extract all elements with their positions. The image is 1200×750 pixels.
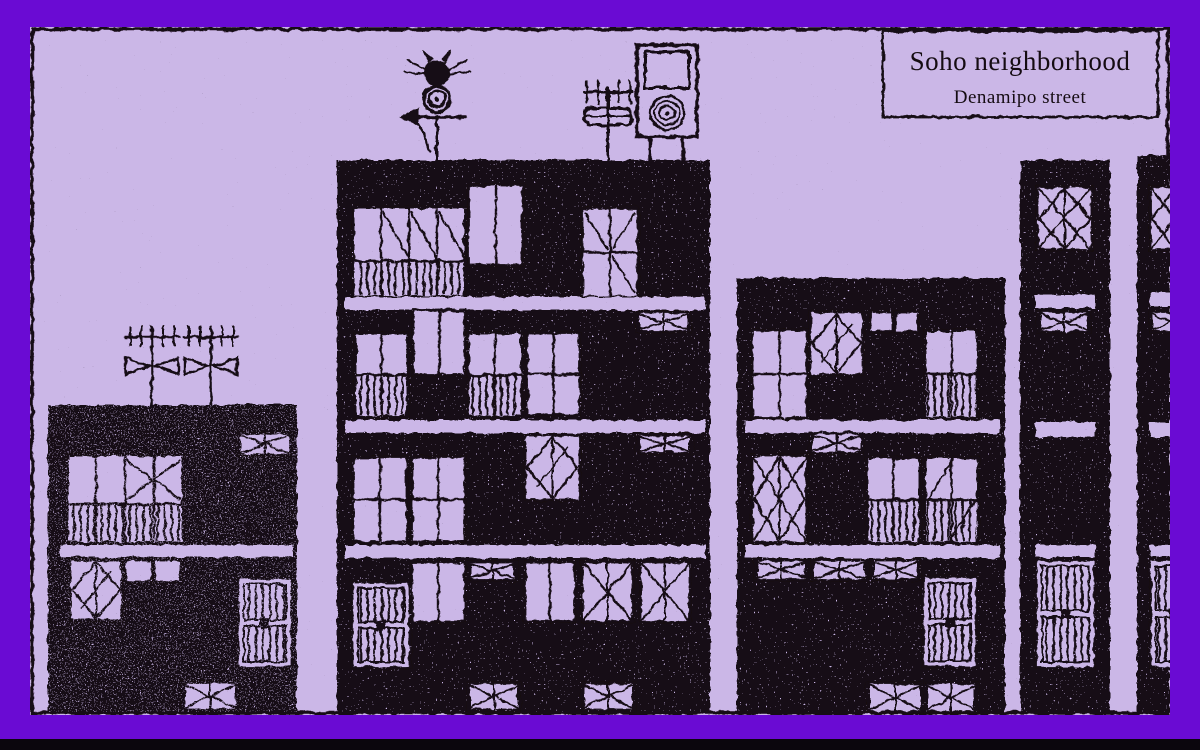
street-label-plaque: Soho neighborhood Denamipo street: [883, 31, 1158, 117]
paper-grain: [30, 27, 1170, 715]
street-subtitle: Denamipo street: [954, 87, 1087, 108]
bottom-bar: [0, 739, 1200, 750]
street-scene-canvas: Soho neighborhood Denamipo street: [0, 0, 1200, 750]
neighborhood-title: Soho neighborhood: [910, 46, 1131, 76]
